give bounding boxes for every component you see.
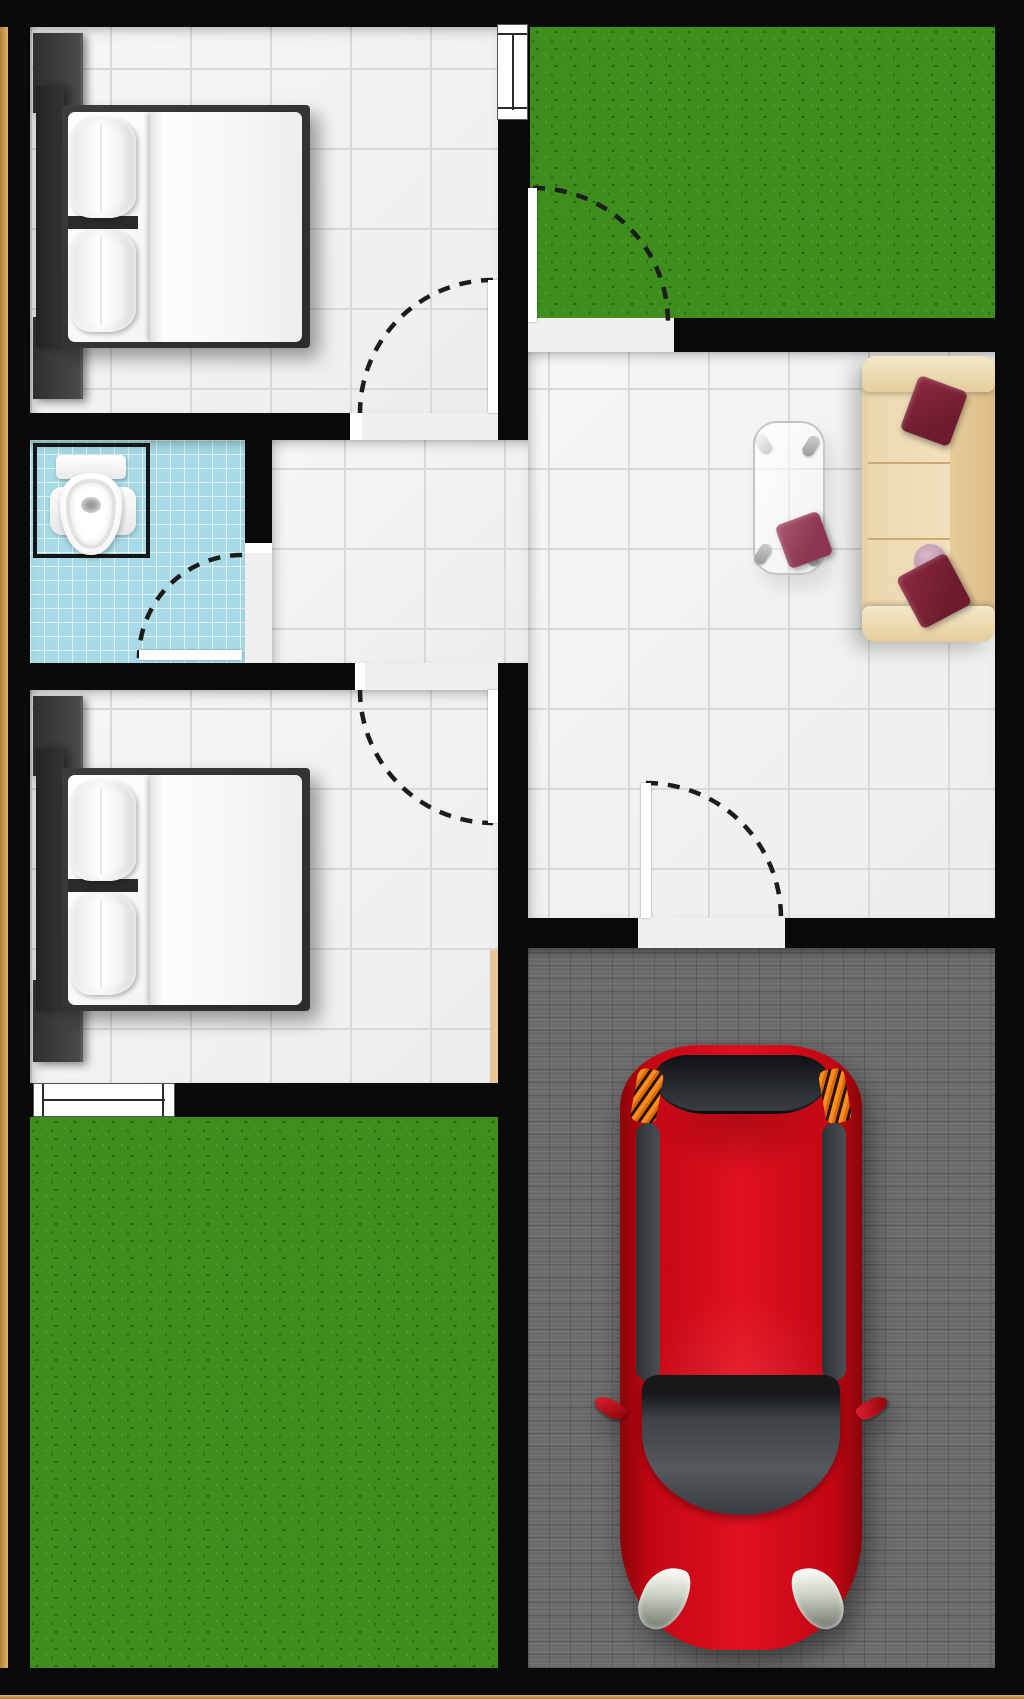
coffee-table: [745, 415, 835, 577]
door-leaf-entry: [528, 188, 537, 322]
double-bed-2: [30, 693, 312, 1065]
bed-headboard: [36, 749, 64, 1011]
toilet-stall: [33, 443, 150, 558]
wall-garage-left: [498, 1117, 528, 1668]
floor-plan: [0, 0, 1024, 1699]
garage-door-opening: [638, 918, 785, 948]
door-jamb: [355, 663, 365, 690]
window-bedroom-1: [497, 24, 528, 120]
bedroom1-door-opening: [362, 413, 498, 440]
car-rear-window: [654, 1055, 828, 1114]
bed-headboard: [36, 86, 64, 348]
wall-entry-front: [674, 318, 995, 352]
room-hallway: [272, 440, 528, 663]
entry-door-opening: [528, 318, 674, 352]
bedroom2-door-opening: [365, 663, 498, 690]
outer-trim-left: [0, 0, 8, 1699]
bed-duvet: [150, 775, 302, 1005]
door-jamb: [350, 413, 362, 440]
pillow: [70, 118, 136, 218]
wall-bedroom2-top: [8, 663, 365, 690]
car: [620, 1045, 862, 1650]
toilet-rim: [66, 479, 116, 549]
toilet-drain: [81, 497, 101, 513]
wall-outer-bottom: [0, 1668, 1024, 1695]
bed-duvet: [150, 112, 302, 342]
bathroom-door-opening: [245, 553, 272, 663]
wall-outer-left: [8, 0, 30, 1699]
pillow: [70, 781, 136, 881]
wall-outer-right: [995, 0, 1024, 1699]
sofa: [862, 356, 995, 642]
window-bedroom-2: [33, 1083, 175, 1117]
car-side-window-right: [822, 1123, 846, 1381]
pillow: [70, 230, 136, 332]
double-bed-1: [30, 30, 312, 402]
wall-outer-top: [0, 0, 1024, 27]
door-leaf-bedroom-2: [488, 690, 498, 823]
wall-bathroom-right: [245, 440, 272, 553]
outer-trim-bottom: [0, 1695, 1024, 1699]
door-leaf-bathroom: [139, 650, 242, 660]
door-leaf-bedroom-1: [488, 280, 498, 413]
back-yard-grass: [30, 1117, 498, 1668]
toilet: [60, 473, 122, 555]
car-side-window-left: [636, 1123, 660, 1381]
wall-bedroom2-right: [498, 663, 528, 1117]
front-yard-grass: [530, 27, 995, 318]
pillow: [70, 893, 136, 995]
door-jamb: [245, 543, 272, 553]
wall-bedroom1-bottom: [8, 413, 362, 440]
door-leaf-garage: [641, 783, 651, 918]
